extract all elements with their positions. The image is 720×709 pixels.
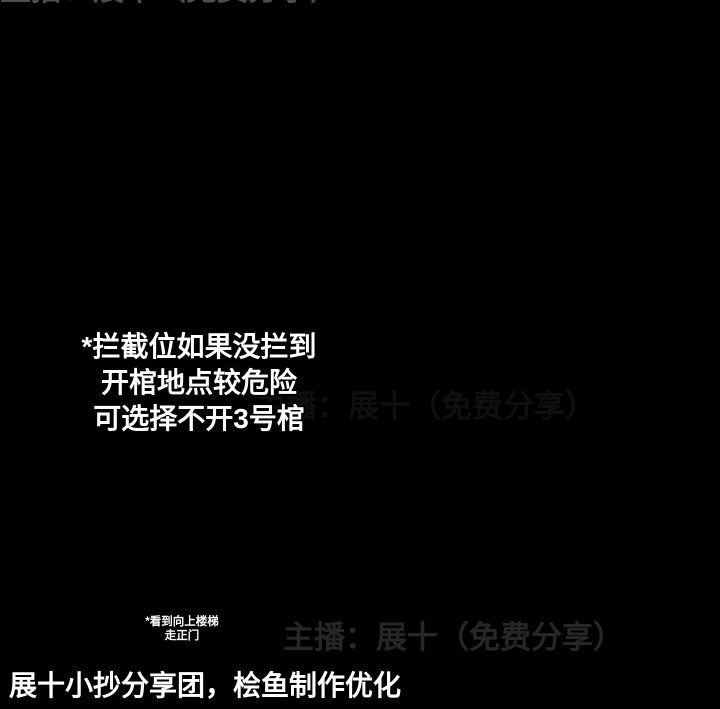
note-line-1: *拦截位如果没拦到 [82, 330, 317, 362]
footer-credit: 展十小抄分享团，桧鱼制作优化 [9, 669, 401, 701]
fight-map-screenshot: 主播：展十（免费分享） 主播：展十（免费分享） 主播：展十（免费分享） 双队打架… [0, 0, 720, 709]
watermark-middle: 主播：展十（免费分享） [0, 0, 341, 7]
note-line-2: 开棺地点较危险 [101, 366, 298, 398]
watermark-bottom: 主播：展十（免费分享） [255, 389, 596, 424]
map-canvas: 主播：展十（免费分享） 主播：展十（免费分享） 主播：展十（免费分享） 双队打架… [0, 0, 720, 709]
watermark-top: 主播：展十（免费分享） [283, 620, 624, 655]
note-line-3: 可选择不开3号棺 [93, 403, 305, 434]
small-note-line-2: 走正门 [164, 628, 200, 642]
small-note-line-1: *看到向上楼梯 [145, 614, 219, 628]
page-title-line2: 3号位 [551, 105, 652, 146]
page-title-line1: 双队打架图 [504, 62, 699, 103]
